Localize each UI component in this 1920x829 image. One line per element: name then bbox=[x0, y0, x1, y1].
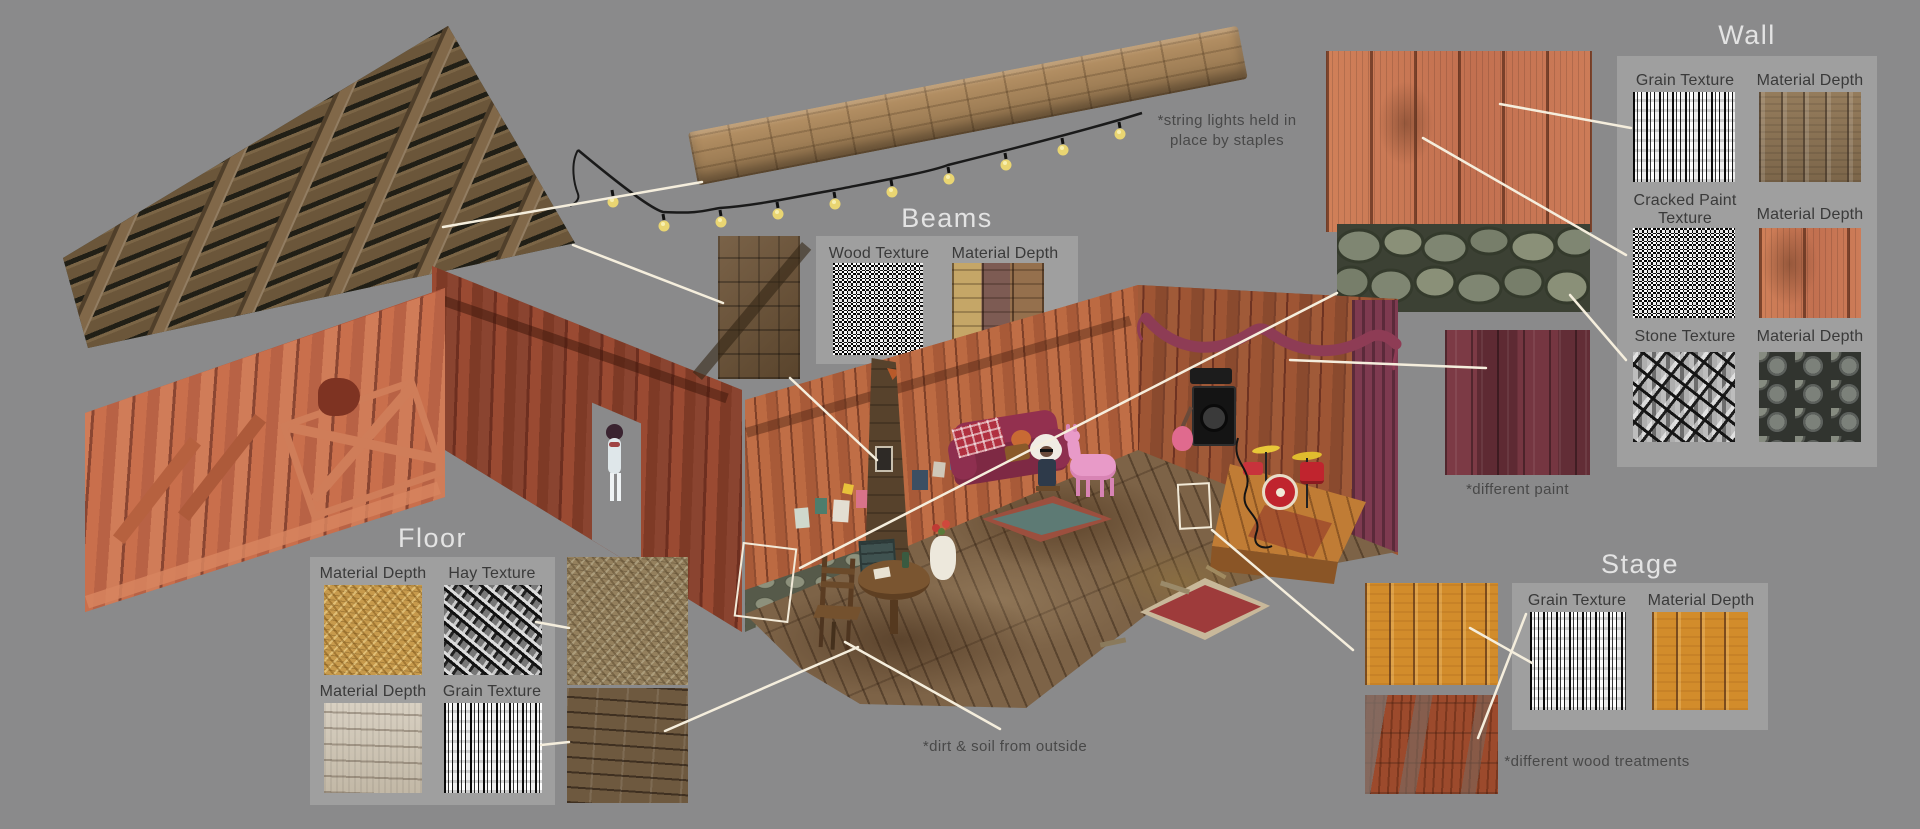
floor-hay-depth-swatch bbox=[324, 585, 422, 675]
chair-leg bbox=[846, 620, 852, 650]
floor-material-depth-label-2: Material Depth bbox=[314, 683, 432, 701]
beams-wood-texture-label: Wood Texture bbox=[824, 245, 934, 263]
wall-brace bbox=[113, 437, 201, 544]
inner-wall-rail bbox=[442, 296, 729, 403]
chair-slat bbox=[821, 581, 854, 589]
beam-texture-swatch bbox=[718, 236, 800, 379]
floor-grain-texture-swatch bbox=[444, 703, 542, 793]
llama-leg bbox=[1100, 479, 1104, 497]
poster bbox=[832, 499, 849, 522]
amp-head bbox=[1190, 368, 1232, 384]
wood-floor-swatch bbox=[567, 688, 688, 803]
wall-stone-texture-label: Stone Texture bbox=[1625, 328, 1745, 346]
callout-roof-to-beam-texture bbox=[573, 245, 723, 303]
stage-grain-texture-swatch bbox=[1530, 612, 1626, 710]
hay-floor-swatch bbox=[567, 557, 688, 685]
snare-drum bbox=[1243, 462, 1263, 475]
beams-wood-texture-swatch bbox=[833, 263, 923, 355]
pitcher-leaves bbox=[938, 528, 945, 535]
llama-ear bbox=[1066, 424, 1070, 432]
character-afro bbox=[1030, 434, 1064, 496]
poster bbox=[794, 507, 810, 528]
stage-panel: Grain Texture Material Depth bbox=[1512, 583, 1768, 730]
stage-group-title: Stage bbox=[1512, 549, 1768, 580]
beam-texture-diagonal bbox=[693, 242, 811, 380]
stage-callout-rect bbox=[1177, 482, 1212, 530]
wall-stone-texture-swatch bbox=[1633, 352, 1735, 442]
floor-grain-texture-label: Grain Texture bbox=[436, 683, 548, 701]
llama-leg bbox=[1086, 479, 1090, 497]
woman-legs bbox=[617, 473, 621, 501]
pitcher-flowers bbox=[942, 520, 950, 528]
wall-cracked-paint-label: Cracked Paint Texture bbox=[1625, 192, 1745, 228]
wood-treatments-caption: *different wood treatments bbox=[1487, 752, 1707, 772]
stage-grain-texture-label: Grain Texture bbox=[1518, 592, 1636, 610]
floor-hay-texture-swatch bbox=[444, 585, 542, 675]
table bbox=[858, 560, 934, 640]
guitar-body bbox=[1172, 426, 1193, 451]
character-llama bbox=[1064, 426, 1122, 498]
wall-grain-texture-label: Grain Texture bbox=[1625, 72, 1745, 90]
chair-leg bbox=[831, 622, 836, 650]
stage-material-depth-label: Material Depth bbox=[1642, 592, 1760, 610]
afro-body bbox=[1038, 459, 1056, 487]
floor-hay-texture-label: Hay Texture bbox=[436, 565, 548, 583]
poster bbox=[932, 461, 946, 477]
stage-wood-swatch bbox=[1365, 583, 1498, 685]
wall-callout-rect bbox=[734, 542, 798, 623]
post-picture bbox=[875, 446, 893, 472]
chair-leg bbox=[819, 617, 825, 647]
poster bbox=[912, 470, 928, 490]
wall-panel: Grain Texture Material Depth Cracked Pai… bbox=[1617, 56, 1877, 467]
drum-kit bbox=[1232, 440, 1342, 516]
table-top bbox=[858, 560, 930, 600]
floor-tom bbox=[1300, 462, 1324, 484]
woman-scarf bbox=[609, 442, 620, 447]
llama-ear bbox=[1073, 424, 1077, 432]
stool bbox=[1036, 486, 1060, 491]
pitcher-body bbox=[930, 536, 956, 580]
wall-material-depth-swatch-1 bbox=[1759, 92, 1861, 182]
wall-material-depth-label-3: Material Depth bbox=[1751, 328, 1869, 346]
different-paint-swatch bbox=[1445, 330, 1590, 475]
character-woman bbox=[604, 424, 632, 506]
wall-material-depth-swatch-3 bbox=[1759, 352, 1861, 442]
stage-material-depth-swatch bbox=[1652, 612, 1748, 710]
string-lights-caption: *string lights held in place by staples bbox=[1127, 111, 1327, 150]
beams-material-depth-label: Material Depth bbox=[946, 245, 1064, 263]
flower-pitcher bbox=[928, 522, 962, 586]
wall-texture-sample bbox=[1326, 51, 1592, 232]
floor-group-title: Floor bbox=[310, 523, 555, 554]
llama-body bbox=[1070, 454, 1116, 480]
chair-slat bbox=[822, 567, 855, 575]
string-lights-cable-end bbox=[570, 150, 578, 206]
guitar bbox=[1168, 400, 1208, 456]
wall-material-depth-swatch-2 bbox=[1759, 228, 1861, 318]
beams-group-title: Beams bbox=[816, 203, 1078, 234]
llama-leg bbox=[1076, 478, 1080, 496]
llama-leg bbox=[1110, 478, 1114, 496]
dirt-soil-caption: *dirt & soil from outside bbox=[905, 737, 1105, 757]
wall-grain-texture-swatch bbox=[1633, 92, 1735, 182]
table-leg bbox=[890, 600, 898, 634]
string-lights-caption-line2: place by staples bbox=[1127, 131, 1327, 151]
wall-material-depth-label-1: Material Depth bbox=[1751, 72, 1869, 90]
poster bbox=[842, 483, 854, 495]
floor-material-depth-label-1: Material Depth bbox=[314, 565, 432, 583]
floor-wood-depth-swatch bbox=[324, 703, 422, 793]
afro-sunglasses bbox=[1040, 449, 1053, 452]
weathered-wood-swatch bbox=[1365, 695, 1498, 794]
poster bbox=[815, 498, 827, 514]
wall-brace bbox=[178, 414, 266, 521]
bass-drum-center bbox=[1276, 488, 1285, 497]
woman-legs bbox=[610, 473, 614, 501]
wall-group-title: Wall bbox=[1617, 20, 1877, 51]
beam-render bbox=[688, 26, 1248, 186]
string-lights-caption-line1: *string lights held in bbox=[1127, 111, 1327, 131]
concept-sheet-canvas: Beams Wood Texture Material Depth Wall G… bbox=[0, 0, 1920, 829]
wall-cracked-paint-swatch bbox=[1633, 228, 1735, 318]
floor-panel: Material Depth Hay Texture Material Dept… bbox=[310, 557, 555, 805]
table-bottle bbox=[902, 552, 909, 568]
different-paint-caption: *different paint bbox=[1445, 480, 1590, 500]
wall-material-depth-label-2: Material Depth bbox=[1751, 206, 1869, 224]
